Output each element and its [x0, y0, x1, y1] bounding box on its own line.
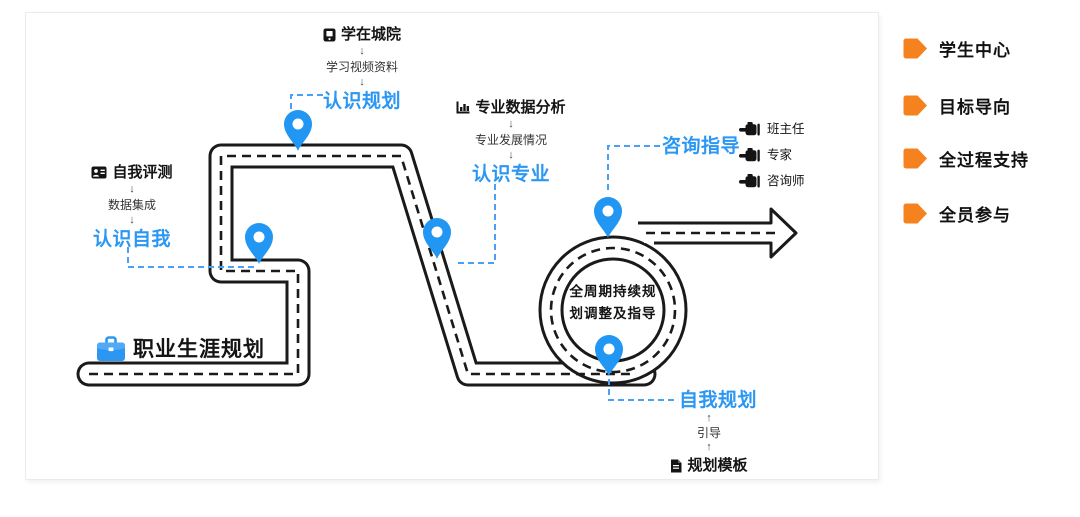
- connector-know-major: [454, 184, 495, 263]
- down-arrow: ↓: [52, 183, 212, 196]
- hand-point-left-icon: [739, 122, 760, 137]
- stage-via-label: 数据集成: [52, 198, 212, 212]
- stage-result-label: 认识自我: [52, 229, 212, 250]
- stage-source: 自我评测: [52, 164, 212, 181]
- stage-self-planning-chain: ↑ 引导 ↑ 规划模板: [629, 411, 789, 474]
- road-start-title: 职业生涯规划: [96, 333, 265, 363]
- down-arrow: ↓: [282, 45, 442, 58]
- stage-result-label: 认识规划: [282, 91, 442, 112]
- sidebar-item-label: 目标导向: [939, 93, 1011, 118]
- orange-tag-arrow-icon: [903, 203, 928, 224]
- pin-consulting: [594, 197, 622, 238]
- bar-chart-icon: [456, 101, 470, 114]
- sidebar-item-label: 学生中心: [939, 36, 1011, 61]
- orange-tag-arrow-icon: [903, 148, 928, 169]
- sidebar-item-label: 全过程支持: [939, 146, 1029, 171]
- down-arrow: ↓: [52, 214, 212, 227]
- loop-label: 全周期持续规 划调整及指导: [552, 281, 674, 325]
- sidebar-item-student-centered: 学生中心: [903, 36, 1011, 61]
- stage-via-label: 学习视频资料: [282, 60, 442, 74]
- principles-sidebar: 学生中心 目标导向 全过程支持 全员参与: [903, 0, 1080, 517]
- up-arrow: ↑: [629, 412, 789, 425]
- stage-source-label: 规划模板: [687, 457, 747, 474]
- down-arrow: ↓: [282, 76, 442, 89]
- briefcase-icon: [96, 335, 126, 362]
- stage-consulting-label: 咨询指导: [662, 136, 740, 157]
- sidebar-item-goal-oriented: 目标导向: [903, 93, 1011, 118]
- road-start-label: 职业生涯规划: [133, 333, 265, 363]
- consultant-list: 班主任 专家 咨询师: [739, 122, 805, 200]
- sidebar-item-everyone-participates: 全员参与: [903, 201, 1011, 226]
- consultant-label: 专家: [767, 148, 792, 163]
- up-arrow: ↑: [629, 441, 789, 454]
- consultant-label: 咨询师: [767, 174, 805, 189]
- consultant-label: 班主任: [767, 122, 805, 137]
- document-icon: [670, 459, 682, 473]
- hand-point-left-icon: [739, 174, 760, 189]
- consultant-row: 专家: [739, 148, 805, 163]
- connector-consulting: [608, 146, 660, 194]
- stage-result-label: 认识专业: [431, 164, 591, 185]
- stage-know-major: 专业数据分析 ↓ 专业发展情况 ↓ 认识专业: [431, 99, 591, 185]
- stage-source-label: 自我评测: [112, 164, 172, 181]
- stage-know-self: 自我评测 ↓ 数据集成 ↓ 认识自我: [52, 164, 212, 250]
- down-arrow: ↓: [431, 149, 591, 162]
- stage-source: 规划模板: [629, 457, 789, 474]
- orange-tag-arrow-icon: [903, 38, 928, 59]
- stage-self-planning-label: 自我规划: [679, 390, 757, 411]
- mobile-learning-icon: [323, 28, 336, 42]
- loop-label-line1: 全周期持续规: [552, 281, 674, 303]
- id-card-icon: [91, 166, 107, 179]
- stage-via-label: 专业发展情况: [431, 133, 591, 147]
- consultant-row: 咨询师: [739, 174, 805, 189]
- loop-label-line2: 划调整及指导: [552, 303, 674, 325]
- stage-know-planning: 学在城院 ↓ 学习视频资料 ↓ 认识规划: [282, 26, 442, 112]
- stage-source-label: 专业数据分析: [475, 99, 565, 116]
- sidebar-item-label: 全员参与: [939, 201, 1011, 226]
- pin-know-self: [245, 223, 273, 264]
- sidebar-item-full-process-support: 全过程支持: [903, 146, 1029, 171]
- orange-tag-arrow-icon: [903, 95, 928, 116]
- down-arrow: ↓: [431, 118, 591, 131]
- hand-point-left-icon: [739, 148, 760, 163]
- diagram-card: 学在城院 ↓ 学习视频资料 ↓ 认识规划 自我评测 ↓ 数据集成 ↓ 认识自我 …: [25, 12, 879, 480]
- stage-source-label: 学在城院: [341, 26, 401, 43]
- stage-via-label: 引导: [629, 426, 789, 440]
- consultant-row: 班主任: [739, 122, 805, 137]
- stage-source: 学在城院: [282, 26, 442, 43]
- stage-source: 专业数据分析: [431, 99, 591, 116]
